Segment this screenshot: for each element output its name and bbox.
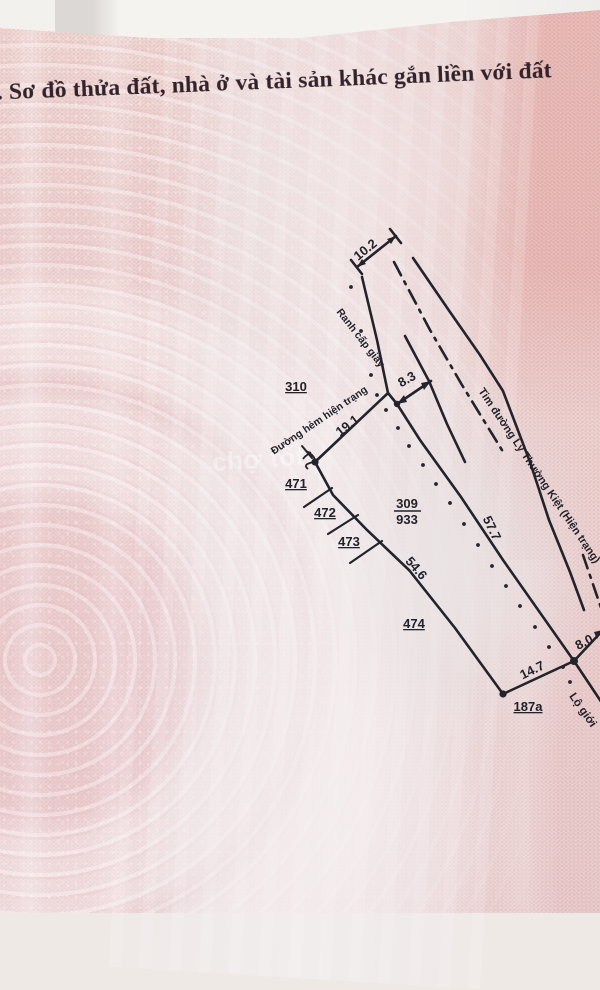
svg-text:57.7: 57.7: [480, 513, 505, 542]
svg-text:8.0: 8.0: [572, 631, 595, 653]
svg-text:309: 309: [396, 496, 418, 511]
svg-text:187a: 187a: [514, 699, 544, 714]
svg-text:14.7: 14.7: [517, 658, 546, 683]
svg-text:473: 473: [338, 534, 360, 549]
svg-text:19.1: 19.1: [333, 412, 362, 439]
svg-text:474: 474: [403, 616, 425, 631]
svg-text:Lộ giới: Lộ giới: [566, 691, 598, 730]
svg-text:472: 472: [314, 505, 336, 520]
svg-text:8.3: 8.3: [395, 368, 418, 390]
svg-text:Ranh cấp giấy: Ranh cấp giấy: [334, 306, 387, 370]
svg-text:54.6: 54.6: [402, 554, 430, 583]
svg-text:471: 471: [285, 476, 307, 491]
svg-text:310: 310: [285, 379, 307, 394]
svg-text:933: 933: [396, 512, 418, 527]
